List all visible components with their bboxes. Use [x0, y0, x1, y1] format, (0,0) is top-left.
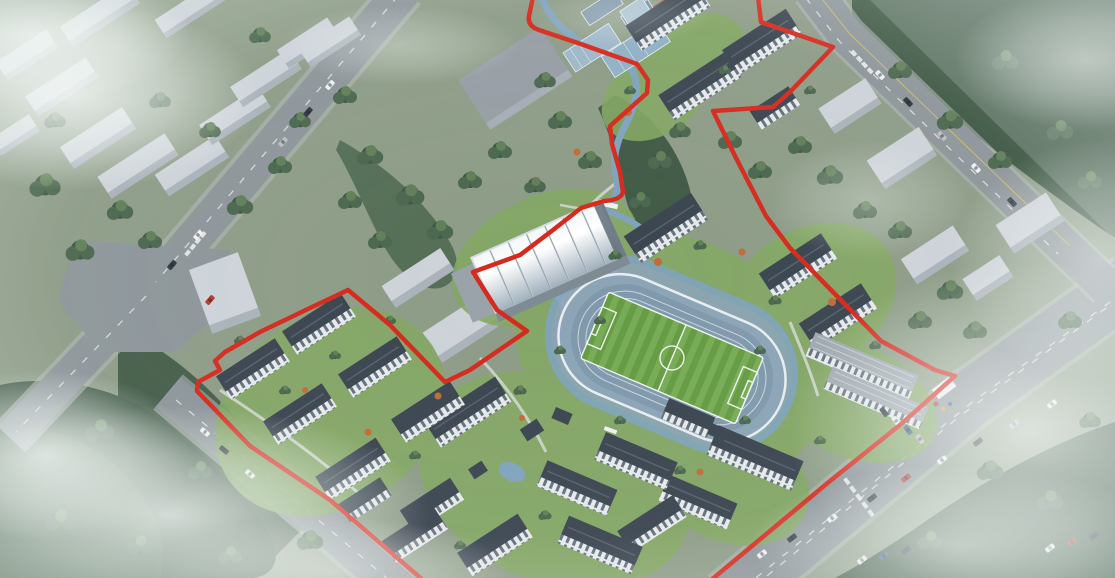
scene-svg: [0, 0, 1115, 578]
fog-layer: [0, 0, 1115, 578]
aerial-rendering: [0, 0, 1115, 578]
